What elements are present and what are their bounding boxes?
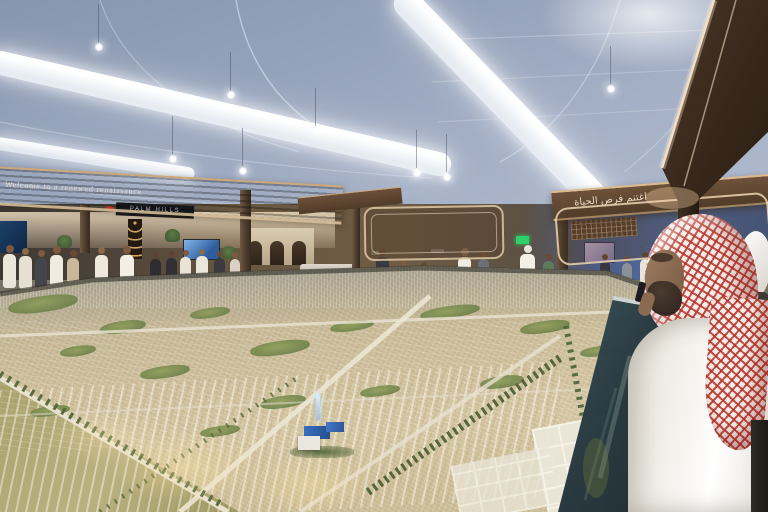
blue-roof [326, 422, 344, 432]
arched-booth-facade [240, 228, 314, 265]
downlight-icon [168, 154, 178, 164]
arch-opening [270, 241, 284, 265]
model-lighting-glow [50, 411, 160, 467]
plant [165, 229, 180, 242]
downlight-icon [412, 168, 422, 178]
pillar [678, 148, 699, 264]
downlight-icon [311, 126, 321, 136]
welcome-banner-text: Welcome to a renewed renaissance [5, 180, 143, 197]
exit-sign [516, 236, 529, 244]
pillar [352, 204, 360, 276]
downlight-icon [226, 90, 236, 100]
downlight-icon [442, 172, 452, 182]
plant [57, 235, 72, 248]
plant [221, 246, 236, 259]
model-minaret [316, 396, 320, 420]
arch-opening [292, 241, 306, 265]
downlight-icon [606, 84, 616, 94]
lit-portal-frame [364, 205, 505, 261]
downlight-icon [94, 42, 104, 52]
dark-edge-figure [751, 420, 768, 512]
display-screen [183, 239, 220, 260]
minaret-light [314, 392, 321, 399]
pillar [80, 205, 90, 253]
booth-shelf [128, 219, 142, 259]
model-lighting-glow [245, 451, 375, 512]
display-screen [0, 221, 27, 253]
city-scale-model [0, 266, 768, 512]
downlight-icon [238, 166, 248, 176]
exhibition-hall-photo: PALM HILLS Welcome to a renewed renaissa… [0, 0, 768, 512]
white-building [298, 436, 320, 450]
companion-garment [734, 350, 768, 512]
shemagh-drape [701, 296, 768, 452]
